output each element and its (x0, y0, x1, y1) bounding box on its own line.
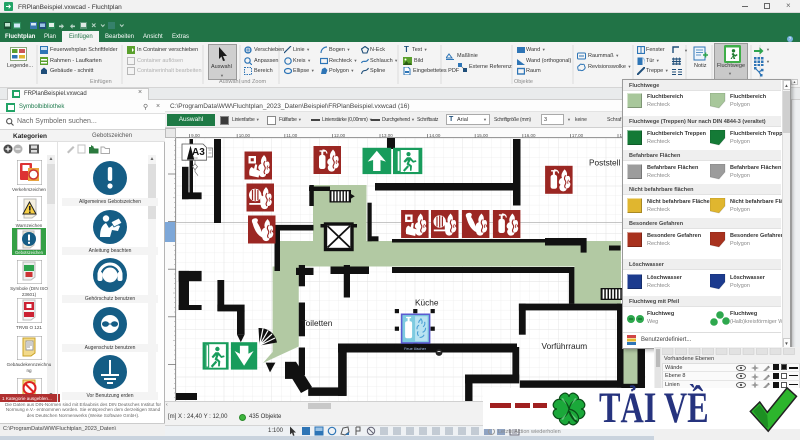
svg-text:Feue löscher: Feue löscher (404, 347, 427, 351)
svg-text:Poststell: Poststell (589, 158, 621, 168)
svg-text:Vorführraum: Vorführraum (542, 341, 588, 351)
svg-text:Toiletten: Toiletten (302, 318, 333, 328)
svg-text:Küche: Küche (415, 298, 439, 308)
